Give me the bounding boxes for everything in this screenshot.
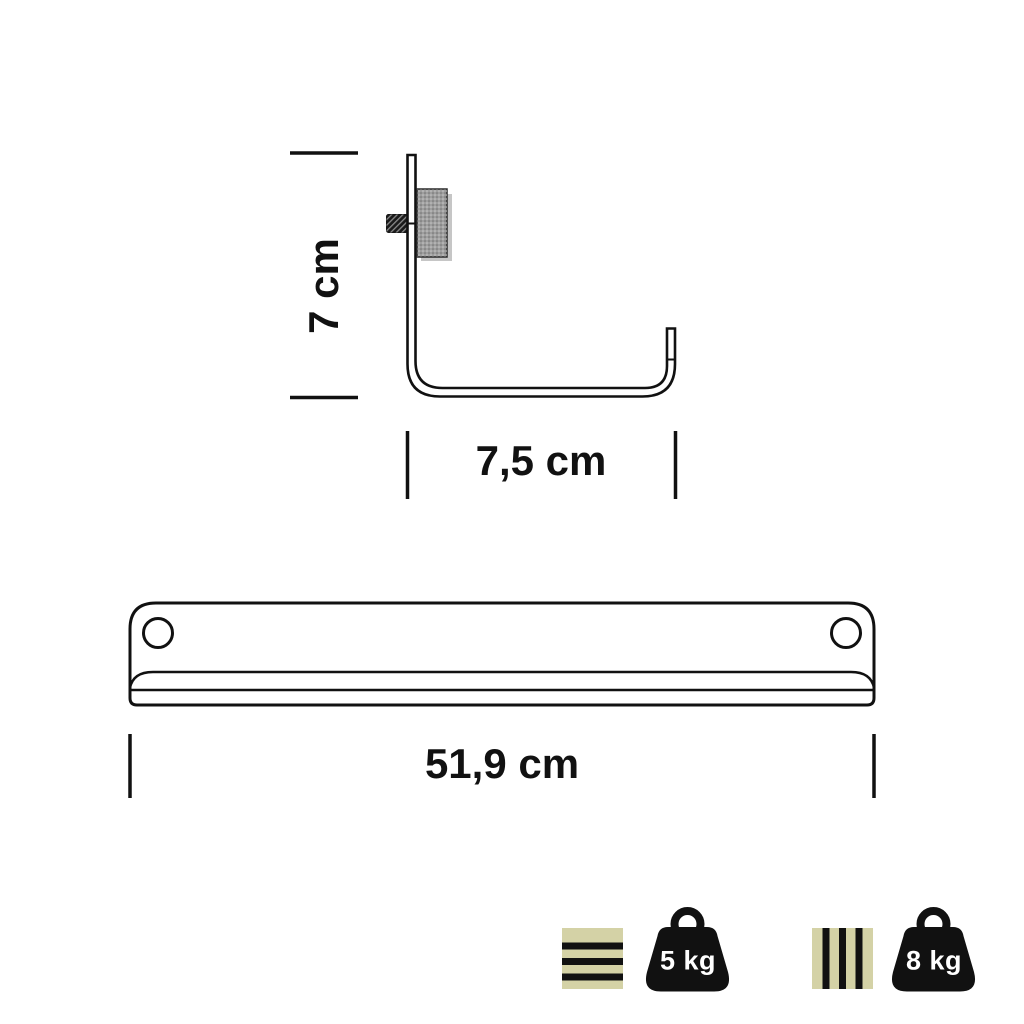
hook-depth-label: 7,5 cm <box>476 440 607 482</box>
horizontal-stripes-icon <box>562 928 623 989</box>
capacity-5kg-label: 5 kg <box>660 948 716 975</box>
hook-height-label: 7 cm <box>303 238 345 334</box>
capacity-8kg-label: 8 kg <box>906 948 962 975</box>
vertical-stripes-icon <box>812 928 873 989</box>
diagram-artwork <box>0 0 1024 1024</box>
knob-knurl-texture <box>417 189 447 257</box>
right-mounting-hole <box>832 619 861 648</box>
product-dimension-diagram: 7 cm 7,5 cm 51,9 cm 5 kg 8 kg <box>0 0 1024 1024</box>
thumbscrew-thread-texture <box>387 215 409 233</box>
rail-width-label: 51,9 cm <box>425 743 579 785</box>
left-mounting-hole <box>144 619 173 648</box>
